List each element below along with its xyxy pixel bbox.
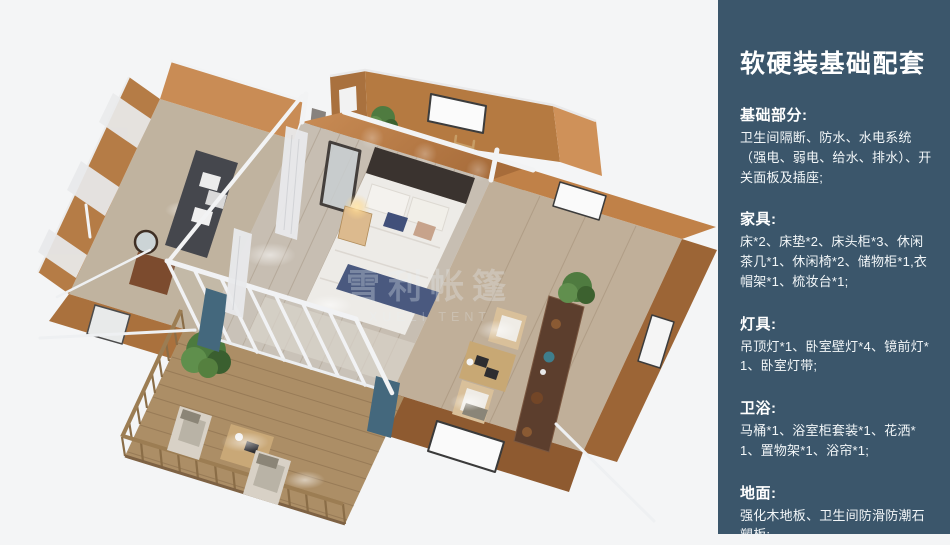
spec-heading-basics: 基础部分:: [740, 104, 936, 125]
watermark: 雪利帐篷 XUELI TENT: [346, 268, 514, 324]
watermark-cn: 雪利帐篷: [346, 268, 514, 306]
slide: 雪利帐篷 XUELI TENT 软硬装基础配套 基础部分: 卫生间隔断、防水、水…: [0, 0, 950, 534]
spec-heading-flooring: 地面:: [740, 482, 936, 503]
spec-section-furniture: 家具: 床*2、床垫*2、床头柜*3、休闲茶几*1、休闲椅*2、储物柜*1,衣帽…: [740, 208, 936, 291]
bedside-lamp: [344, 194, 370, 220]
spec-body-bathroom: 马桶*1、浴室柜套装*1、花洒*1、置物架*1、浴帘*1;: [740, 421, 936, 461]
spec-section-lighting: 灯具: 吊顶灯*1、卧室壁灯*4、镜前灯*1、卧室灯带;: [740, 313, 936, 377]
spec-heading-furniture: 家具:: [740, 208, 936, 229]
bathroom-side-window: [339, 86, 357, 114]
spec-section-basics: 基础部分: 卫生间隔断、防水、水电系统（强电、弱电、给水、排水）、开关面板及插座…: [740, 104, 936, 187]
spec-body-basics: 卫生间隔断、防水、水电系统（强电、弱电、给水、排水）、开关面板及插座;: [740, 128, 936, 187]
spec-heading-lighting: 灯具:: [740, 313, 936, 334]
spec-body-furniture: 床*2、床垫*2、床头柜*3、休闲茶几*1、休闲椅*2、储物柜*1,衣帽架*1、…: [740, 232, 936, 291]
floorplan-render: 雪利帐篷 XUELI TENT: [0, 0, 718, 534]
round-mirror: [135, 231, 157, 253]
spec-heading-bathroom: 卫浴:: [740, 397, 936, 418]
spec-sidebar: 软硬装基础配套 基础部分: 卫生间隔断、防水、水电系统（强电、弱电、给水、排水）…: [718, 0, 950, 534]
watermark-en: XUELI TENT: [369, 310, 491, 324]
spec-body-lighting: 吊顶灯*1、卧室壁灯*4、镜前灯*1、卧室灯带;: [740, 337, 936, 377]
spec-section-flooring: 地面: 强化木地板、卫生间防滑防潮石塑板;: [740, 482, 936, 545]
floorplan-render-pane: 雪利帐篷 XUELI TENT: [0, 0, 718, 534]
spec-body-flooring: 强化木地板、卫生间防滑防潮石塑板;: [740, 506, 936, 545]
spec-section-bathroom: 卫浴: 马桶*1、浴室柜套装*1、花洒*1、置物架*1、浴帘*1;: [740, 397, 936, 461]
sidebar-title: 软硬装基础配套: [740, 44, 936, 80]
